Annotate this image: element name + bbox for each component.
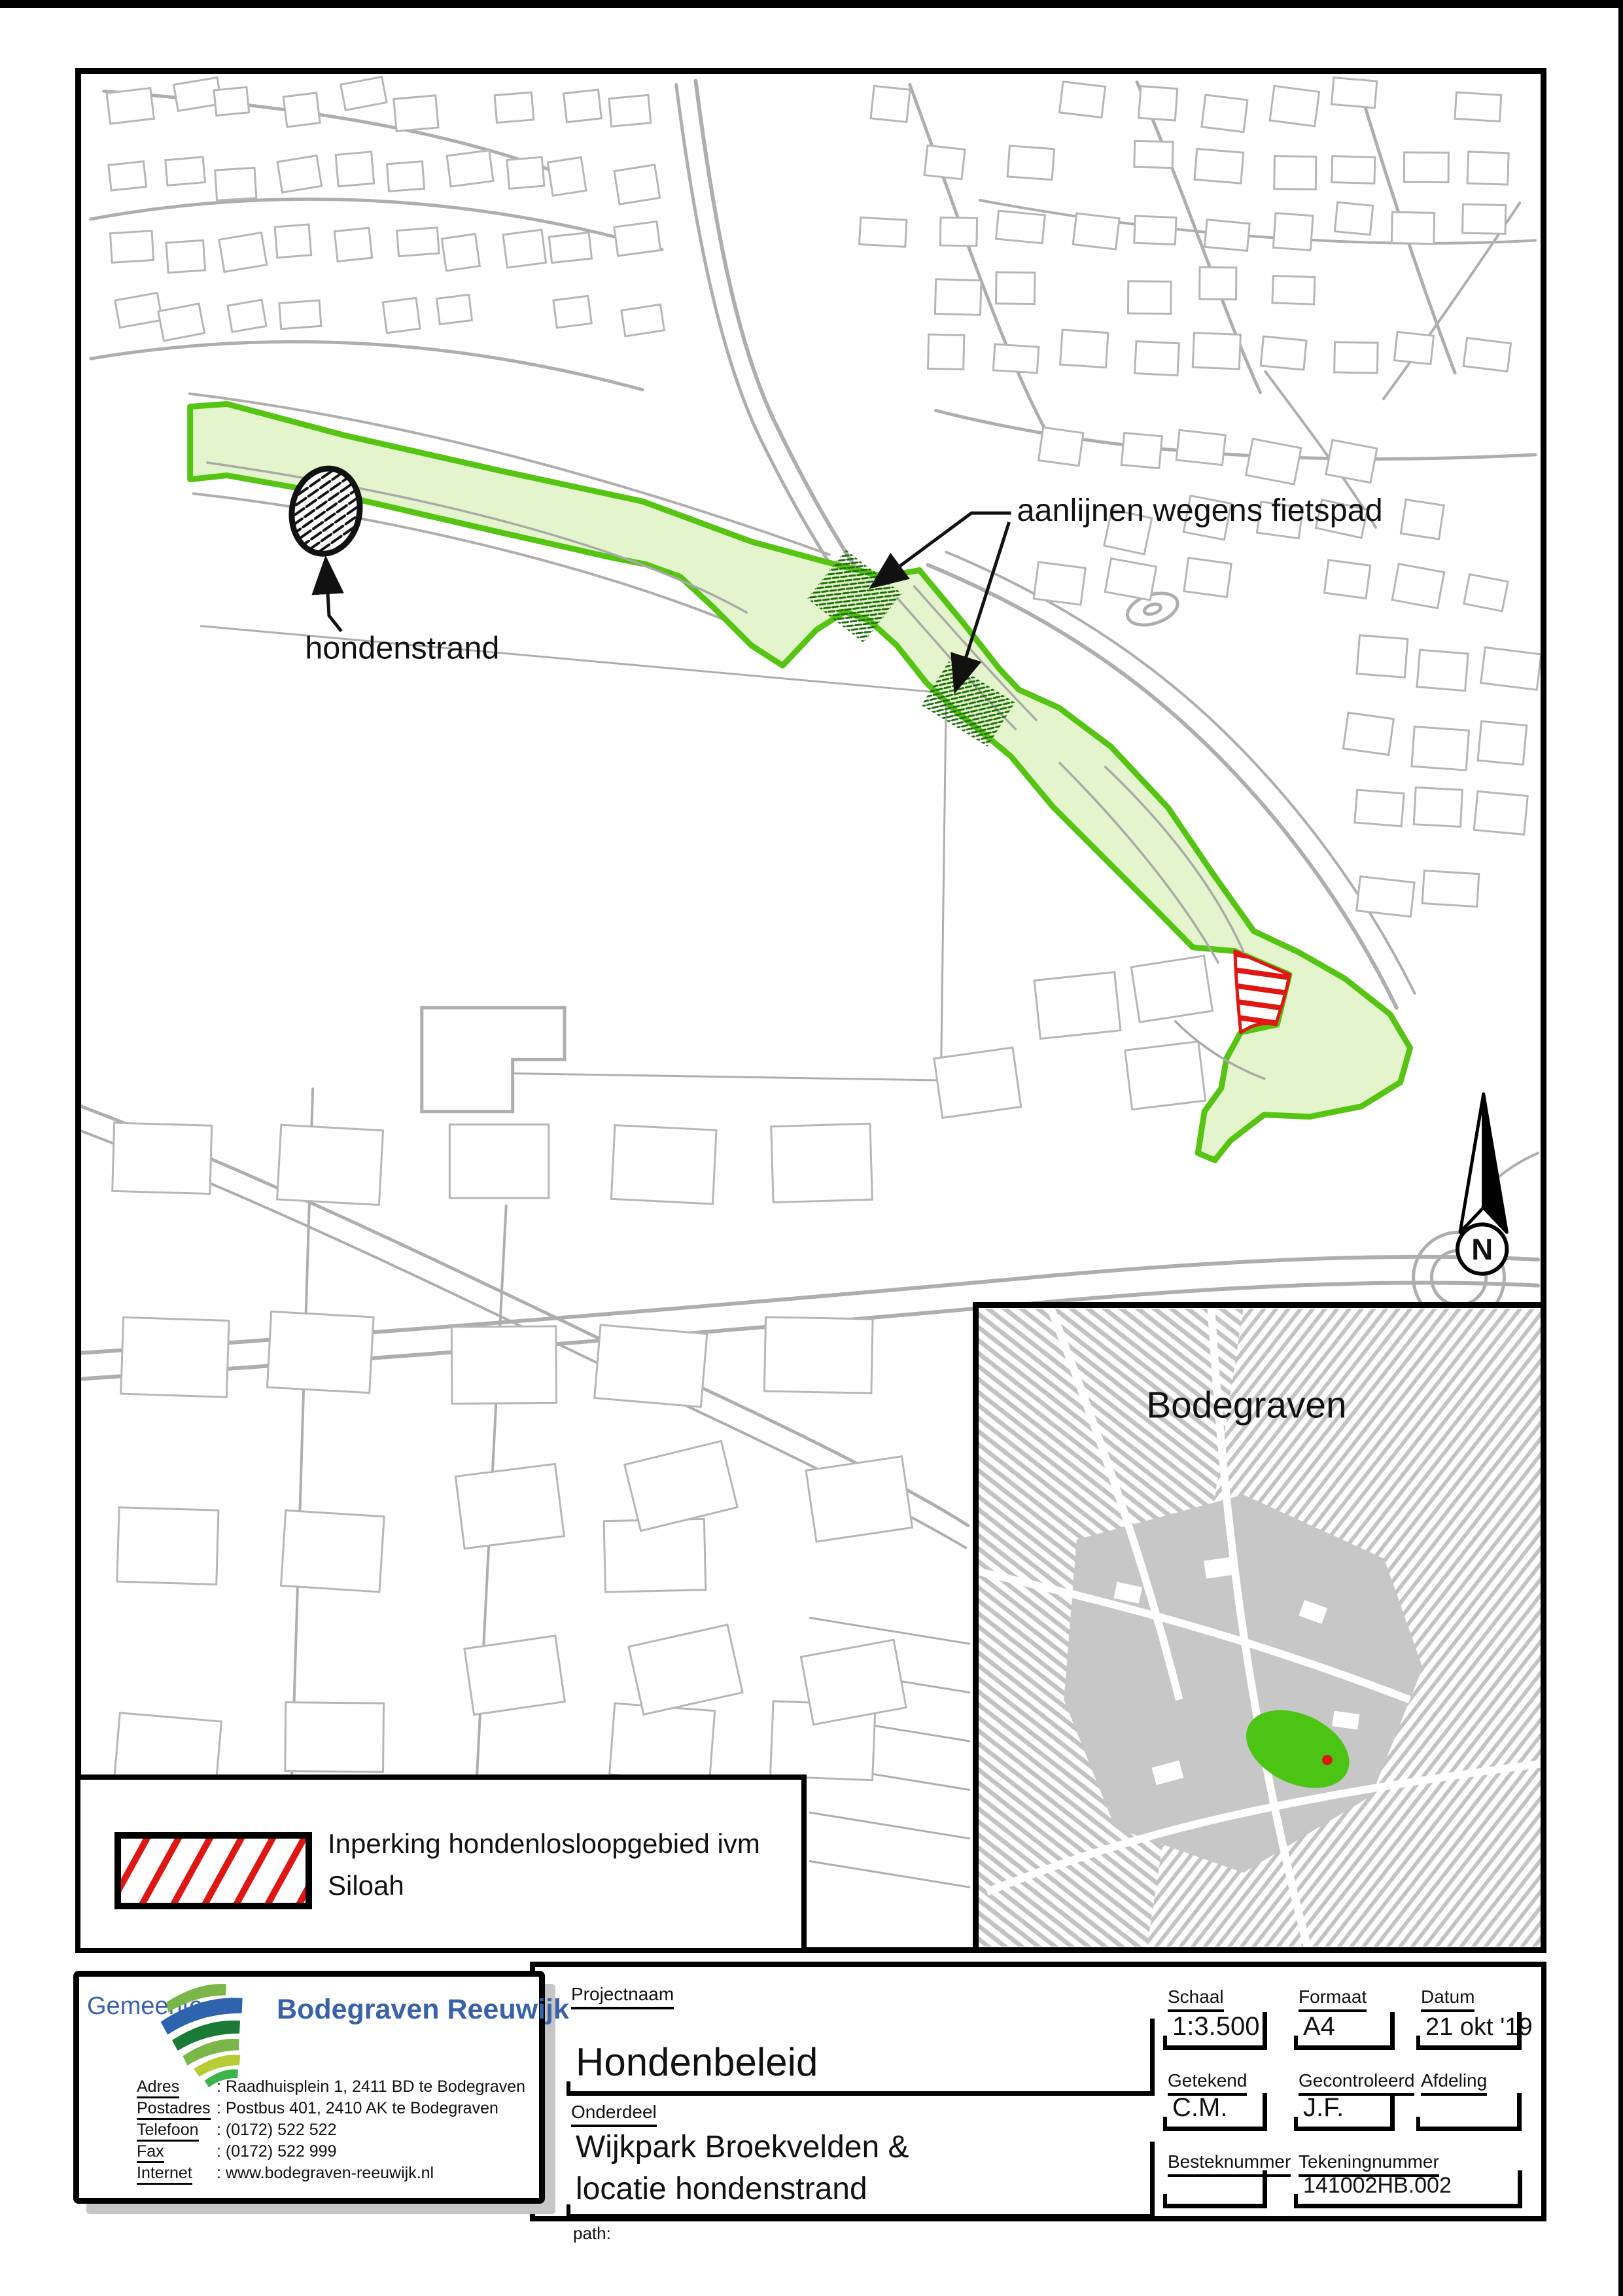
north-arrow-icon: N xyxy=(1457,1094,1507,1274)
path-label: path: xyxy=(573,2223,611,2244)
postadres-value: : Postbus 401, 2410 AK te Bodegraven xyxy=(217,2098,498,2119)
datum-field: 21 okt '19 xyxy=(1418,2009,1517,2050)
address-row: Postadres : Postbus 401, 2410 AK te Bode… xyxy=(137,2098,525,2119)
formaat-field: A4 xyxy=(1295,2009,1390,2050)
getekend-field: C.M. xyxy=(1164,2089,1263,2131)
inset-map-canvas: Bodegraven xyxy=(979,1308,1541,1947)
tekeningnummer-field: 141002HB.002 xyxy=(1295,2163,1518,2208)
tekeningnummer-value: 141002HB.002 xyxy=(1303,2173,1452,2199)
datum-value: 21 okt '19 xyxy=(1425,2013,1533,2041)
onderdeel-field: Wijkpark Broekvelden & locatie hondenstr… xyxy=(568,2123,1150,2219)
legend-line-2: Siloah xyxy=(328,1865,760,1907)
address-row: Fax : (0172) 522 999 xyxy=(137,2141,525,2163)
getekend-value: C.M. xyxy=(1172,2093,1227,2123)
gecontroleerd-value: J.F. xyxy=(1303,2093,1344,2123)
municipality-logo-icon xyxy=(152,1978,270,2089)
inset-restriction-dot xyxy=(1322,1755,1333,1765)
address-row: Adres : Raadhuisplein 1, 2411 BD te Bode… xyxy=(137,2076,525,2098)
municipality-logo-box: Gemeente Bodegraven Reeuwijk Adres : Raa… xyxy=(73,1971,545,2204)
adres-value: : Raadhuisplein 1, 2411 BD te Bodegraven xyxy=(217,2076,525,2098)
schaal-value: 1:3.500 xyxy=(1172,2012,1259,2041)
scan-top-edge xyxy=(0,0,1623,8)
internet-value: : www.bodegraven-reeuwijk.nl xyxy=(217,2163,434,2184)
schaal-field: 1:3.500 xyxy=(1164,2009,1263,2050)
internet-label: Internet xyxy=(137,2164,192,2185)
title-block: Projectnaam Hondenbeleid Onderdeel Wijkp… xyxy=(530,1962,1546,2221)
hondenstrand-arrow xyxy=(326,559,341,631)
restriction-hatch-swatch xyxy=(114,1832,312,1909)
onderdeel-value-line1: Wijkpark Broekvelden & xyxy=(576,2127,909,2168)
address-row: Telefoon : (0172) 522 522 xyxy=(137,2119,525,2141)
projectnaam-value: Hondenbeleid xyxy=(576,2040,818,2085)
legend-text: Inperking hondenlosloopgebied ivm Siloah xyxy=(328,1823,760,1907)
inset-title: Bodegraven xyxy=(1146,1385,1346,1426)
address-block: Adres : Raadhuisplein 1, 2411 BD te Bode… xyxy=(137,2076,525,2184)
onderdeel-value-line2: locatie hondenstrand xyxy=(576,2168,909,2210)
afdeling-field xyxy=(1418,2089,1517,2131)
telefoon-label: Telefoon xyxy=(137,2121,199,2142)
fax-value: : (0172) 522 999 xyxy=(217,2141,336,2163)
north-letter: N xyxy=(1471,1233,1493,1266)
hondenstrand-label: hondenstrand xyxy=(305,630,499,665)
formaat-value: A4 xyxy=(1303,2012,1335,2041)
address-row: Internet : www.bodegraven-reeuwijk.nl xyxy=(137,2163,525,2184)
gecontroleerd-field: J.F. xyxy=(1295,2089,1390,2131)
telefoon-value: : (0172) 522 522 xyxy=(217,2119,336,2141)
postadres-label: Postadres xyxy=(137,2099,211,2120)
adres-label: Adres xyxy=(137,2077,179,2098)
drawing-sheet: aanlijnen wegens fietspad hondenstrand N… xyxy=(0,0,1623,2296)
scan-right-edge xyxy=(1618,0,1623,2296)
fax-label: Fax xyxy=(137,2142,164,2163)
onderdeel-value: Wijkpark Broekvelden & locatie hondenstr… xyxy=(576,2127,909,2210)
projectnaam-field: Hondenbeleid xyxy=(568,2005,1150,2096)
inset-overview-map: Bodegraven xyxy=(973,1302,1546,1953)
besteknummer-field xyxy=(1164,2163,1263,2208)
municipality-name: Bodegraven Reeuwijk xyxy=(277,1994,569,2026)
legend-box: Inperking hondenlosloopgebied ivm Siloah xyxy=(75,1775,807,1953)
aanlijnen-label: aanlijnen wegens fietspad xyxy=(1017,493,1382,528)
legend-line-1: Inperking hondenlosloopgebied ivm xyxy=(328,1823,760,1865)
